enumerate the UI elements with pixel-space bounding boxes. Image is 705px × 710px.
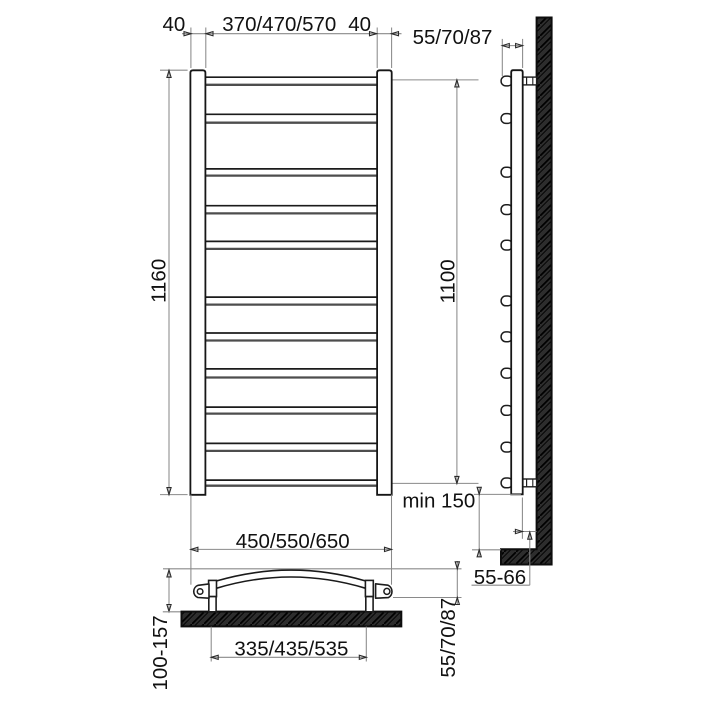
svg-text:370/470/570: 370/470/570 (222, 13, 336, 36)
svg-text:450/550/650: 450/550/650 (236, 530, 350, 553)
svg-text:100-157: 100-157 (149, 615, 172, 690)
svg-text:1160: 1160 (148, 259, 171, 303)
svg-text:55-66: 55-66 (474, 566, 526, 589)
svg-text:335/435/535: 335/435/535 (234, 638, 348, 661)
svg-text:55/70/87: 55/70/87 (437, 598, 460, 678)
svg-text:min 150: min 150 (402, 490, 475, 513)
svg-text:40: 40 (162, 13, 185, 36)
svg-text:1100: 1100 (436, 259, 459, 303)
svg-text:55/70/87: 55/70/87 (413, 26, 493, 49)
svg-text:40: 40 (348, 13, 371, 36)
